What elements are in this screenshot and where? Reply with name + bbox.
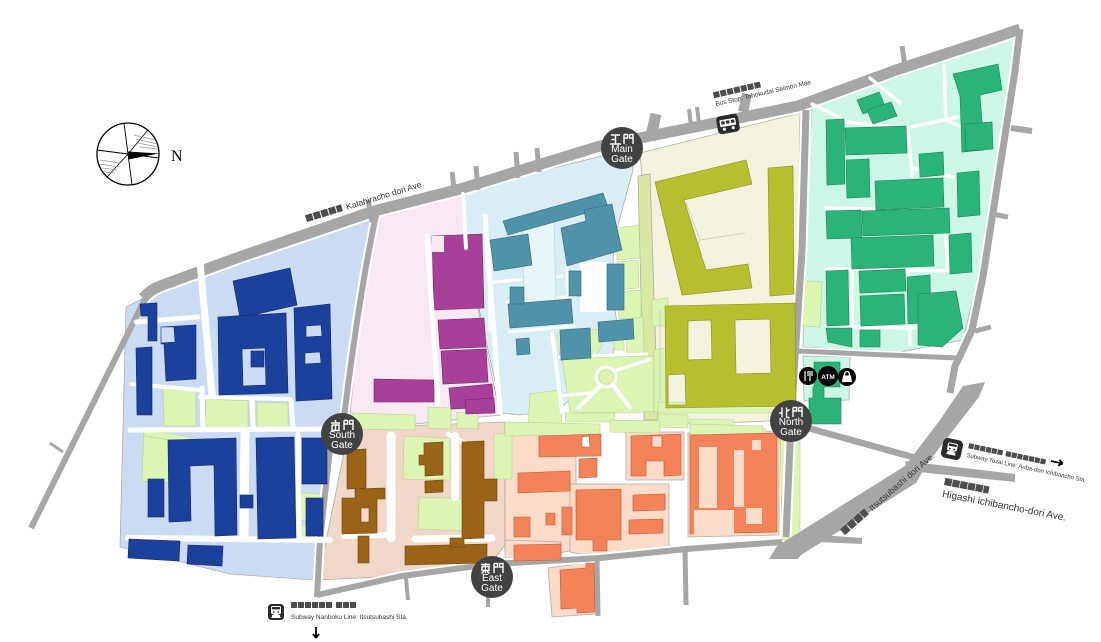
svg-text:ATM: ATM [821,374,835,381]
svg-text:Gate: Gate [331,440,353,451]
svg-text:Subway Nanboku Line: Itsutsuba: Subway Nanboku Line: Itsutsubashi Sta. [291,614,408,621]
svg-text:N: N [171,148,183,165]
svg-text:Gate: Gate [611,154,633,165]
svg-text:Gate: Gate [780,427,802,438]
svg-text:Gate: Gate [481,583,503,594]
